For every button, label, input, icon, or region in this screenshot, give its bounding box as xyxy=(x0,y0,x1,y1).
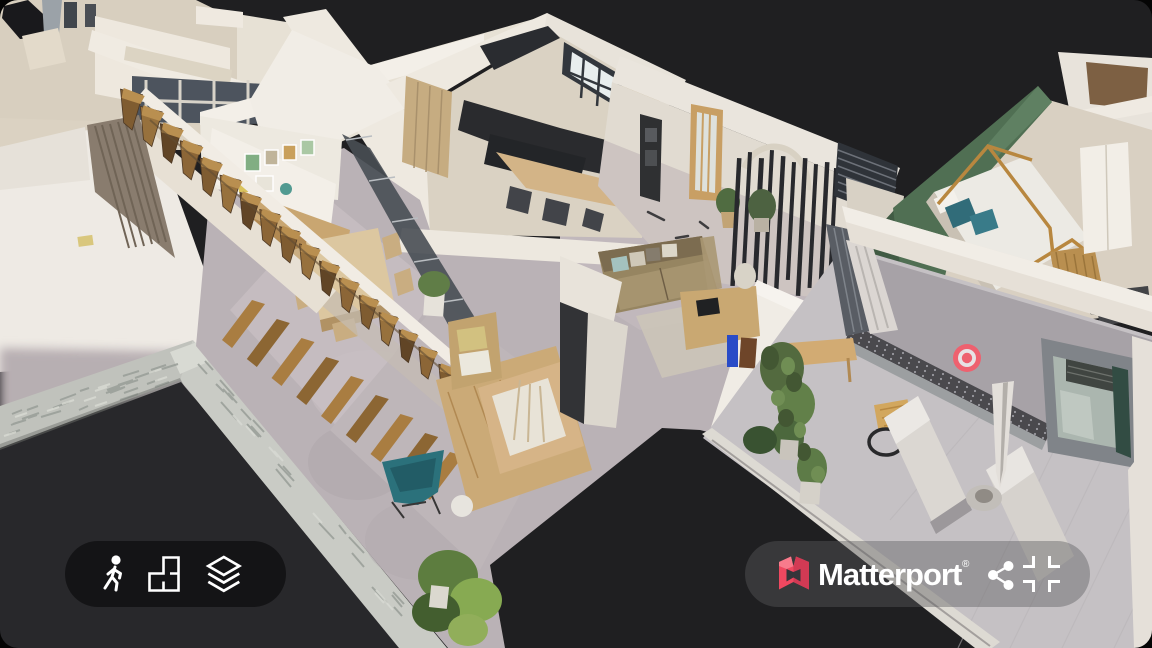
svg-text:Matterport: Matterport xyxy=(818,557,962,592)
svg-text:®: ® xyxy=(962,559,970,570)
